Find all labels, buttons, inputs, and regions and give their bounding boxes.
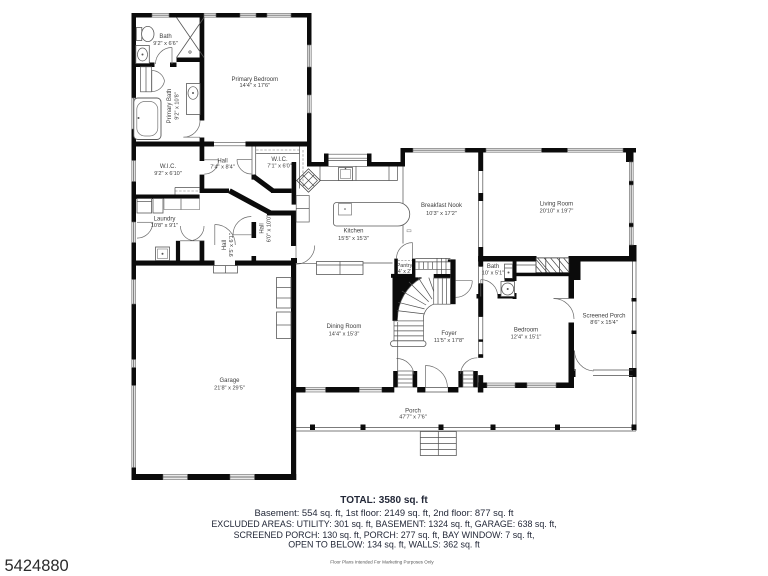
- svg-text:Primary Bedroom: Primary Bedroom: [231, 77, 278, 83]
- svg-text:10'3" x 17'2": 10'3" x 17'2": [426, 211, 457, 217]
- svg-text:Bedroom: Bedroom: [514, 328, 538, 334]
- svg-text:9'2" x 6'10": 9'2" x 6'10": [154, 171, 182, 177]
- svg-text:SCREENED PORCH: 130 sq. ft, PO: SCREENED PORCH: 130 sq. ft, PORCH: 277 s…: [234, 530, 535, 540]
- svg-text:5424880: 5424880: [5, 557, 69, 575]
- svg-text:Hall: Hall: [260, 223, 266, 233]
- svg-text:Floor Plans Intended For Marke: Floor Plans Intended For Marketing Purpo…: [330, 560, 434, 565]
- svg-text:4' x 2': 4' x 2': [398, 269, 411, 275]
- svg-text:10' x 5'1": 10' x 5'1": [482, 270, 504, 276]
- svg-text:14'4" x 17'6": 14'4" x 17'6": [239, 83, 270, 89]
- svg-text:7'1" x 6'0": 7'1" x 6'0": [267, 164, 291, 170]
- svg-text:Screened Porch: Screened Porch: [582, 314, 625, 320]
- svg-text:21'8" x 29'5": 21'8" x 29'5": [214, 386, 245, 392]
- svg-text:47'7" x 7'6": 47'7" x 7'6": [399, 415, 427, 421]
- svg-text:Bath: Bath: [487, 264, 499, 270]
- svg-text:Bath: Bath: [159, 34, 171, 40]
- svg-text:Primary Bath: Primary Bath: [167, 89, 173, 124]
- svg-text:Basement: 554 sq. ft, 1st floo: Basement: 554 sq. ft, 1st floor: 2149 sq…: [254, 507, 513, 518]
- svg-text:W.I.C.: W.I.C.: [160, 164, 177, 170]
- svg-text:Dining Room: Dining Room: [327, 324, 362, 330]
- svg-text:W.I.C.: W.I.C.: [271, 157, 288, 163]
- svg-text:14'4" x 15'3": 14'4" x 15'3": [329, 331, 360, 337]
- svg-text:Hall: Hall: [222, 240, 228, 250]
- svg-text:Kitchen: Kitchen: [343, 229, 363, 235]
- svg-text:Breakfast Nook: Breakfast Nook: [421, 203, 463, 209]
- svg-text:15'5" x 15'3": 15'5" x 15'3": [338, 236, 369, 242]
- svg-text:9'2" x 10'8": 9'2" x 10'8": [175, 92, 181, 120]
- svg-text:TOTAL: 3580 sq. ft: TOTAL: 3580 sq. ft: [340, 495, 428, 506]
- svg-text:Living Room: Living Room: [540, 201, 573, 207]
- svg-text:20'10" x 19'7": 20'10" x 19'7": [540, 209, 574, 215]
- svg-text:10'8" x 9'1": 10'8" x 9'1": [151, 223, 179, 229]
- svg-text:9'5' x 6'1": 9'5' x 6'1": [229, 233, 235, 257]
- svg-text:Foyer: Foyer: [441, 331, 456, 337]
- svg-text:7'4" x 8'4": 7'4" x 8'4": [210, 164, 234, 170]
- svg-text:Laundry: Laundry: [154, 217, 176, 223]
- svg-text:Garage: Garage: [219, 378, 240, 384]
- svg-text:EXCLUDED AREAS: UTILITY: 301 s: EXCLUDED AREAS: UTILITY: 301 sq. ft, BAS…: [211, 519, 556, 529]
- svg-text:12'4" x 15'1": 12'4" x 15'1": [511, 335, 542, 341]
- svg-text:11'5" x 17'8": 11'5" x 17'8": [434, 338, 464, 344]
- svg-text:OPEN TO BELOW: 134 sq. ft, WAL: OPEN TO BELOW: 134 sq. ft, WALLS: 362 sq…: [288, 539, 480, 549]
- svg-text:6'0" x 10'0": 6'0" x 10'0": [267, 215, 273, 243]
- svg-text:9'2" x 6'6": 9'2" x 6'6": [153, 41, 177, 47]
- svg-text:8'6" x 15'4": 8'6" x 15'4": [590, 320, 618, 326]
- svg-text:Porch: Porch: [405, 408, 421, 414]
